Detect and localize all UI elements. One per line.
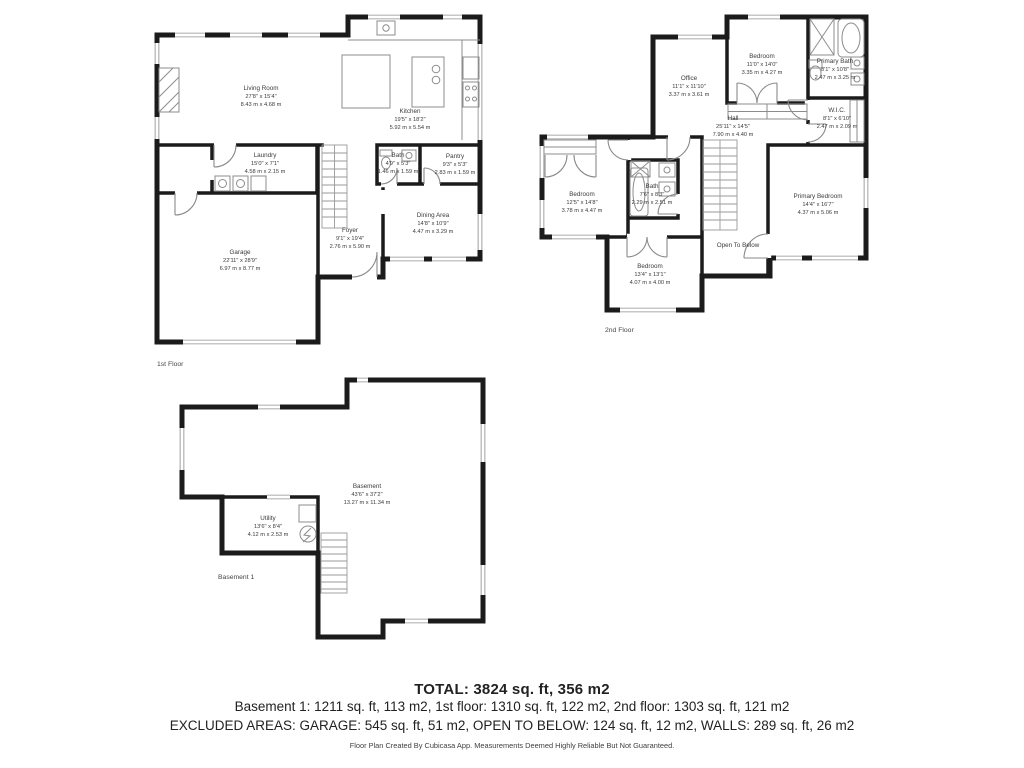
basement-windows: [182, 380, 483, 621]
room-label-bath2-metric: 2.29 m x 2.51 m: [632, 200, 673, 206]
room-label-bedroom-bottom-metric: 4.07 m x 4.00 m: [630, 280, 671, 286]
room-label-hall-imperial: 25'11" x 14'5": [716, 124, 750, 130]
total-area-line: TOTAL: 3824 sq. ft, 356 m2: [0, 681, 1024, 698]
room-label-pantry-metric: 2.83 m x 1.59 m: [435, 170, 476, 176]
floor-plan-canvas: Living Room 27'8" x 15'4" 8.43 m x 4.68 …: [0, 0, 1024, 768]
room-label-primary-bedroom-metric: 4.37 m x 5.06 m: [798, 210, 839, 216]
room-label-living-room-metric: 8.43 m x 4.68 m: [241, 102, 282, 108]
room-label-pantry-imperial: 9'3" x 5'3": [443, 162, 468, 168]
room-label-living-room-name: Living Room: [244, 85, 279, 92]
living-room-table: [342, 55, 390, 108]
fireplace: [159, 68, 179, 112]
room-label-bedroom-top-metric: 3.35 m x 4.27 m: [742, 70, 783, 76]
room-label-bedroom-top-imperial: 11'0" x 14'0": [747, 62, 778, 68]
second-floor-doors: [545, 83, 826, 258]
excluded-areas-line: EXCLUDED AREAS: GARAGE: 545 sq. ft, 51 m…: [0, 717, 1024, 736]
room-label-bath2-imperial: 7'6" x 8'3": [640, 192, 665, 198]
room-label-bath1-metric: 1.46 m x 1.59 m: [378, 169, 419, 175]
room-label-garage-name: Garage: [229, 249, 251, 256]
bedroom-left-closet: [544, 140, 596, 154]
room-label-laundry-name: Laundry: [254, 152, 278, 159]
room-label-laundry-imperial: 15'0" x 7'1": [251, 161, 279, 167]
room-label-bedroom-top-name: Bedroom: [749, 53, 775, 60]
room-label-pantry-name: Pantry: [446, 153, 465, 160]
room-label-office-imperial: 11'1" x 11'10": [672, 84, 706, 90]
room-label-bedroom-left-name: Bedroom: [569, 191, 595, 198]
room-label-foyer-name: Foyer: [342, 227, 358, 234]
room-label-basement-name: Basement: [353, 483, 382, 490]
room-label-foyer-imperial: 9'1" x 19'4": [336, 236, 364, 242]
first-floor-stairs: [322, 145, 347, 228]
first-floor-plan: Living Room 27'8" x 15'4" 8.43 m x 4.68 …: [157, 17, 480, 368]
room-label-wic-name: W.I.C.: [828, 107, 845, 114]
room-label-bedroom-left-metric: 3.78 m x 4.47 m: [562, 208, 603, 214]
room-label-dining-imperial: 14'8" x 10'9": [417, 221, 448, 227]
room-label-bedroom-left-imperial: 12'5" x 14'8": [566, 200, 597, 206]
room-label-bedroom-bottom-name: Bedroom: [637, 263, 663, 270]
room-label-bath1-name: Bath: [392, 152, 405, 159]
room-label-primary-bath-imperial: 8'1" x 10'8": [821, 67, 849, 73]
room-label-office-name: Office: [681, 75, 698, 82]
basement-stairs: [321, 533, 347, 593]
room-label-utility-name: Utility: [260, 515, 276, 522]
floor-areas-line: Basement 1: 1211 sq. ft, 113 m2, 1st flo…: [0, 698, 1024, 717]
room-label-dining-name: Dining Area: [417, 212, 450, 219]
disclaimer-line: Floor Plan Created By Cubicasa App. Meas…: [0, 741, 1024, 750]
room-label-bath1-imperial: 4'9" x 5'3": [386, 161, 411, 167]
utility-fixtures: [299, 505, 316, 542]
room-label-foyer-metric: 2.76 m x 5.90 m: [330, 244, 371, 250]
floor-label-basement: Basement 1: [218, 574, 254, 581]
room-label-basement-imperial: 43'6" x 37'2": [351, 492, 382, 498]
room-label-garage-metric: 6.97 m x 8.77 m: [220, 266, 261, 272]
room-label-kitchen-name: Kitchen: [399, 108, 421, 115]
room-label-primary-bath-metric: 2.47 m x 3.25 m: [815, 75, 856, 81]
room-label-basement-metric: 13.27 m x 11.34 m: [344, 500, 391, 506]
basement-floor-plan: Basement 43'6" x 37'2" 13.27 m x 11.34 m…: [182, 380, 483, 637]
floor-label-second: 2nd Floor: [605, 327, 634, 334]
floor-plan-page: Living Room 27'8" x 15'4" 8.43 m x 4.68 …: [0, 0, 1024, 768]
room-label-laundry-metric: 4.58 m x 2.15 m: [245, 169, 286, 175]
room-label-utility-imperial: 13'6" x 8'4": [254, 524, 282, 530]
second-floor-stairs: [703, 140, 737, 230]
open-to-below-label: Open To Below: [717, 242, 760, 249]
room-label-utility-metric: 4.12 m x 2.53 m: [248, 532, 289, 538]
area-summary: TOTAL: 3824 sq. ft, 356 m2 Basement 1: 1…: [0, 681, 1024, 750]
room-label-wic-metric: 2.47 m x 2.09 m: [817, 124, 858, 130]
room-label-kitchen-imperial: 19'5" x 18'2": [394, 117, 425, 123]
room-label-bath2-name: Bath: [646, 183, 659, 190]
basement-exterior-walls: [182, 380, 483, 637]
room-label-primary-bath-name: Primary Bath: [817, 58, 854, 65]
room-label-garage-imperial: 22'11" x 28'9": [223, 258, 257, 264]
room-label-hall-name: Hall: [728, 115, 739, 122]
room-label-primary-bedroom-name: Primary Bedroom: [794, 193, 843, 200]
room-label-wic-imperial: 8'1" x 6'10": [823, 116, 851, 122]
room-label-hall-metric: 7.90 m x 4.40 m: [713, 132, 754, 138]
room-label-living-room-imperial: 27'8" x 15'4": [245, 94, 276, 100]
room-label-kitchen-metric: 5.92 m x 5.54 m: [390, 125, 431, 131]
floor-label-first: 1st Floor: [157, 361, 184, 368]
wic-shelving: [850, 100, 864, 142]
room-label-dining-metric: 4.47 m x 3.29 m: [413, 229, 454, 235]
bedroom-top-closet: [728, 104, 807, 119]
room-label-bedroom-bottom-imperial: 13'4" x 13'1": [634, 272, 665, 278]
laundry-machines: [215, 176, 266, 191]
second-floor-plan: Office 11'1" x 11'10" 3.37 m x 3.61 m Be…: [542, 17, 866, 334]
room-label-office-metric: 3.37 m x 3.61 m: [669, 92, 710, 98]
room-label-primary-bedroom-imperial: 14'4" x 16'7": [802, 202, 833, 208]
